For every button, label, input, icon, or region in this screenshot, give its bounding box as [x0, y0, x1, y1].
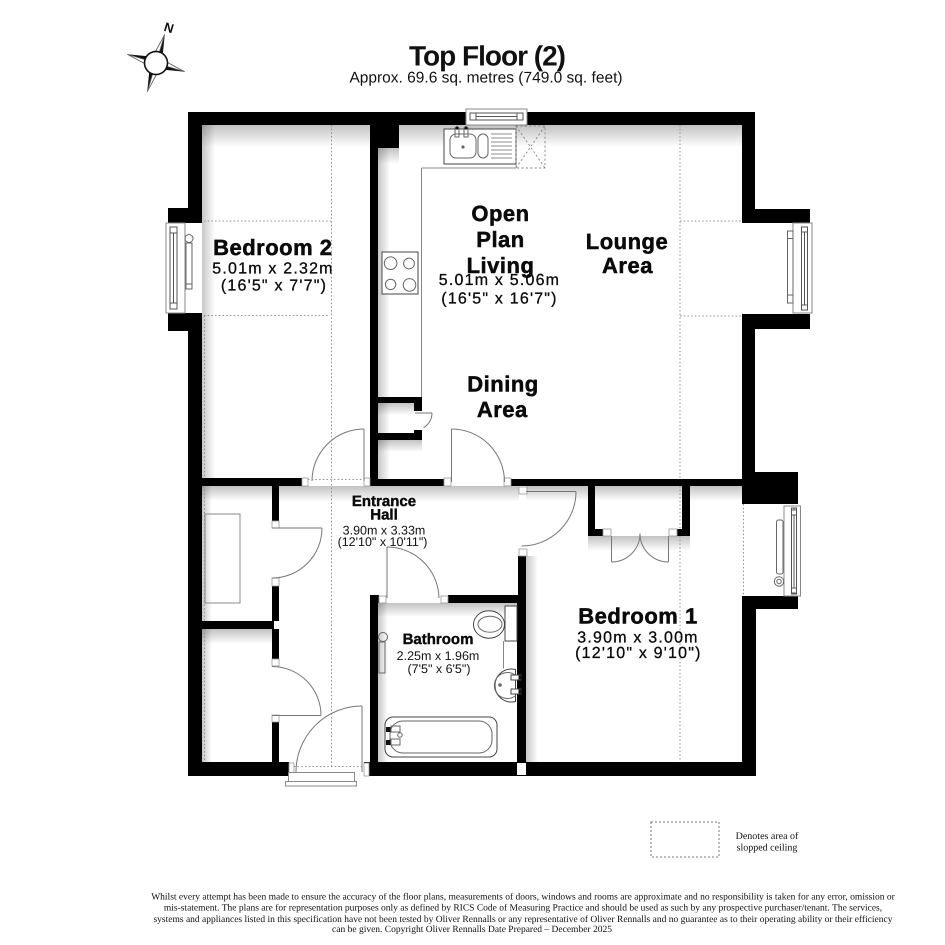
svg-text:Lounge: Lounge: [586, 229, 668, 254]
svg-text:(12'10" x 9'10"): (12'10" x 9'10"): [575, 645, 702, 662]
svg-text:Plan: Plan: [476, 227, 524, 252]
svg-text:2.25m x 1.96m: 2.25m x 1.96m: [397, 649, 480, 663]
svg-text:systems and appliances listed: systems and appliances listed in this sp…: [153, 915, 892, 925]
svg-text:(16'5" x 7'7"): (16'5" x 7'7"): [221, 278, 327, 295]
svg-text:slopped ceiling: slopped ceiling: [737, 843, 798, 854]
svg-text:(12'10" x 10'11"): (12'10" x 10'11"): [338, 535, 428, 549]
svg-text:Bathroom: Bathroom: [403, 631, 474, 648]
svg-text:can be given. Copyright Oliver: can be given. Copyright Oliver Rennalls …: [332, 925, 612, 935]
svg-text:mis-statement. The plans are f: mis-statement. The plans are for represe…: [164, 904, 882, 914]
svg-text:5.01m x 2.32m: 5.01m x 2.32m: [212, 261, 333, 278]
svg-text:Open: Open: [471, 201, 529, 226]
svg-text:Approx. 69.6 sq. metres (749.0: Approx. 69.6 sq. metres (749.0 sq. feet): [349, 70, 622, 87]
svg-text:Dining: Dining: [467, 372, 538, 397]
svg-text:(7'5" x 6'5"): (7'5" x 6'5"): [408, 662, 471, 676]
svg-text:Bedroom 1: Bedroom 1: [578, 604, 697, 629]
svg-text:Denotes area of: Denotes area of: [736, 831, 799, 842]
svg-text:N: N: [162, 19, 175, 36]
svg-text:Bedroom 2: Bedroom 2: [213, 235, 332, 260]
svg-text:Area: Area: [602, 253, 653, 278]
svg-text:Whilst every attempt has been: Whilst every attempt has been made to en…: [151, 892, 895, 902]
svg-text:(16'5" x 16'7"): (16'5" x 16'7"): [441, 291, 557, 308]
svg-text:Area: Area: [477, 397, 528, 422]
svg-text:3.90m x 3.00m: 3.90m x 3.00m: [577, 630, 698, 647]
svg-text:5.01m x 5.06m: 5.01m x 5.06m: [439, 272, 560, 289]
svg-text:Hall: Hall: [370, 507, 398, 524]
svg-text:Top Floor (2): Top Floor (2): [409, 41, 565, 72]
